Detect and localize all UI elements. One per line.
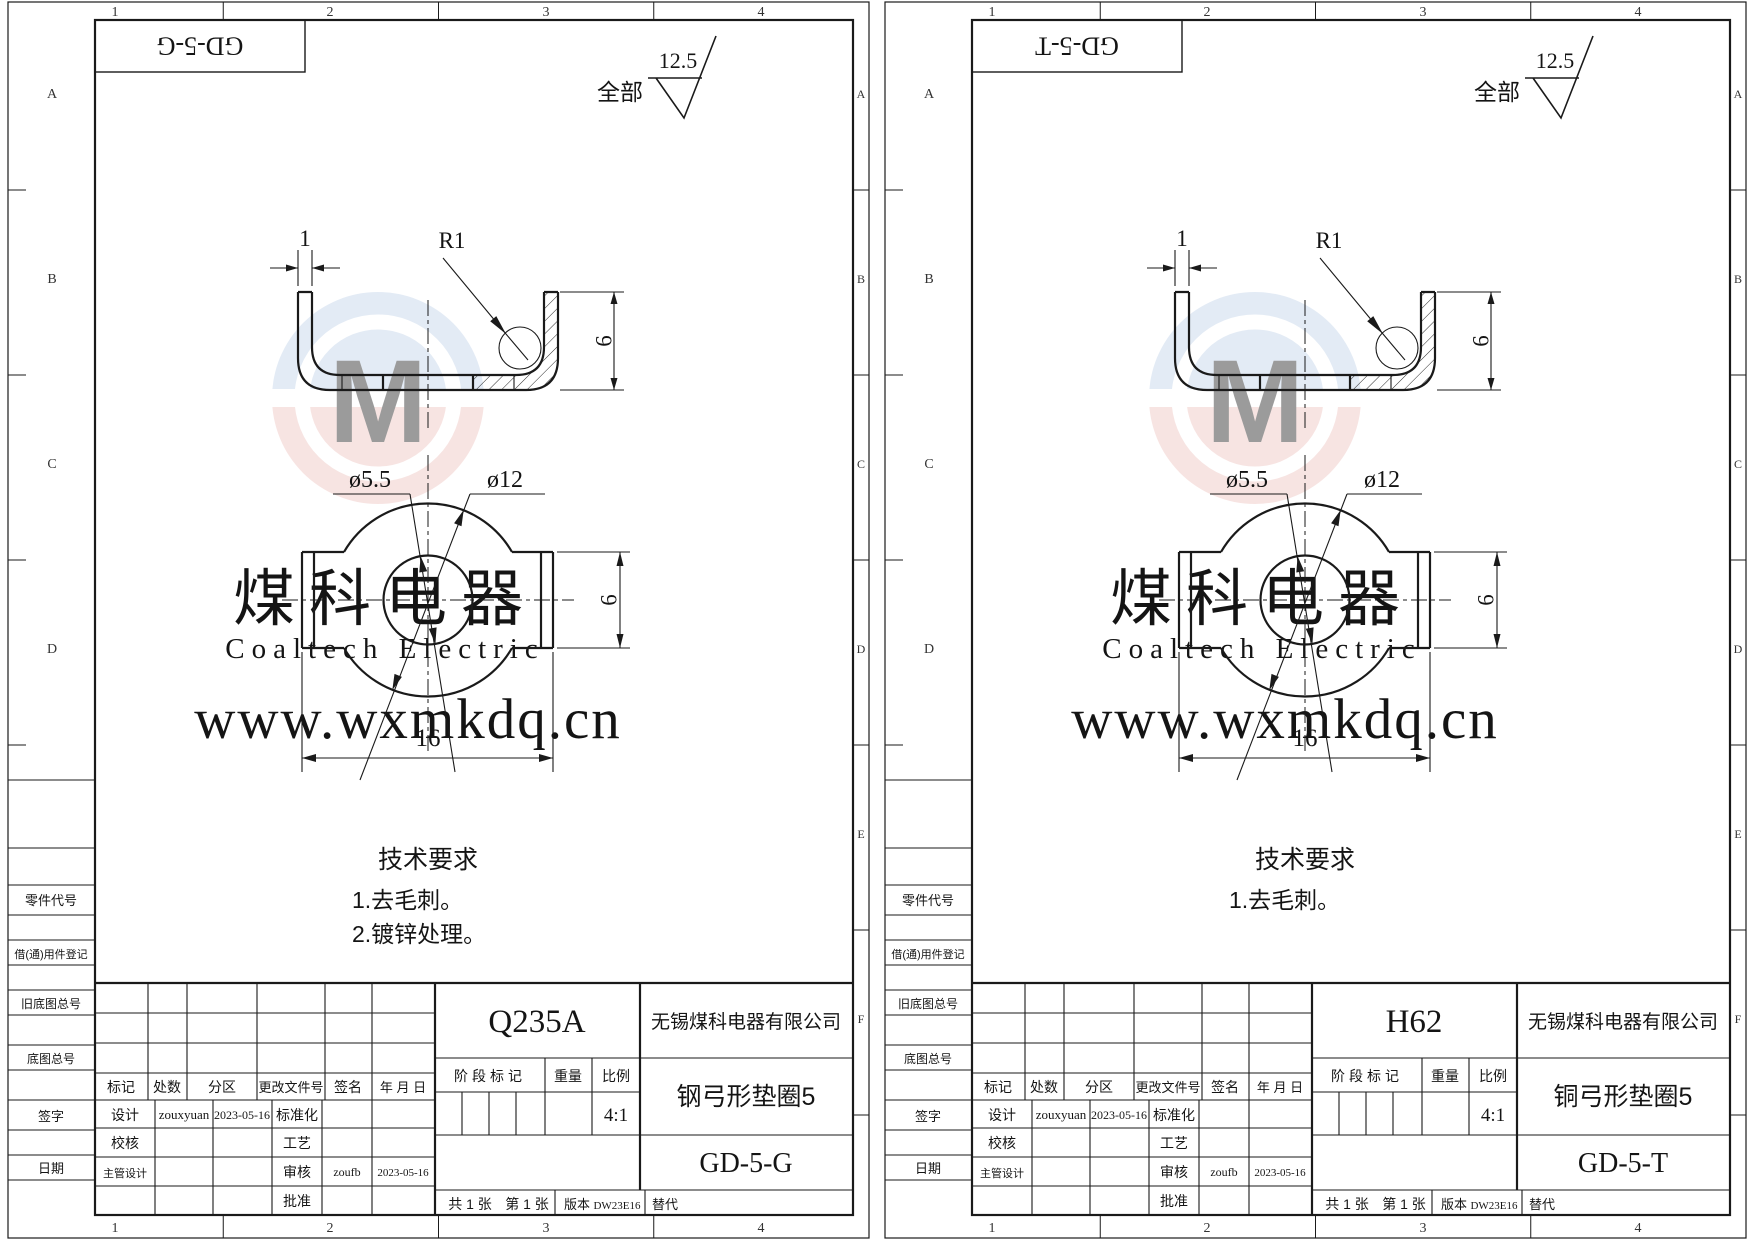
version-value: DW23E16 (1470, 1200, 1518, 1212)
logo-m-letter: M (329, 336, 427, 468)
company-name: 无锡煤科电器有限公司 (1528, 1011, 1718, 1033)
company-name: 无锡煤科电器有限公司 (651, 1011, 841, 1033)
margin-date-label: 日期 (38, 1161, 64, 1176)
rev-col-sign: 签名 (334, 1079, 362, 1095)
dim-section-height: 6 (1469, 335, 1494, 347)
zone-col-top-3: 3 (1420, 5, 1427, 20)
margin-label-column: 零件代号 借(通)用件登记 旧底图总号 底图总号 签字 日期 (885, 780, 972, 1180)
dim-overall-width: 16 (416, 725, 441, 752)
watermark-brand-en: Coaltech Electric (225, 633, 544, 665)
margin-old-base-no-label: 旧底图总号 (898, 996, 958, 1011)
scale-value: 4:1 (604, 1105, 628, 1126)
zone-row-right-f: F (1735, 1012, 1742, 1026)
rev-col-docno: 更改文件号 (258, 1080, 323, 1095)
zone-row-left-a: A (924, 87, 935, 102)
zone-row-left-c: C (47, 457, 56, 472)
tech-req-item-1: 1.去毛刺。 (352, 887, 463, 913)
role-standard-label: 标准化 (1153, 1107, 1195, 1123)
version-label: 版本 (1441, 1197, 1467, 1212)
zone-col-top-2: 2 (327, 5, 334, 20)
surface-roughness-value: 12.5 (659, 48, 698, 73)
dim-tab-height: 6 (597, 594, 622, 606)
zone-col-bottom-3: 3 (543, 1221, 550, 1236)
rev-col-mark: 标记 (107, 1079, 135, 1095)
surface-scope-label: 全部 (1474, 79, 1520, 105)
zone-row-right-c: C (857, 457, 865, 471)
rev-col-date: 年 月 日 (380, 1080, 426, 1095)
zone-row-left-b: B (924, 272, 933, 287)
designer-name: zouxyuan (1036, 1107, 1087, 1122)
role-chief-label: 主管设计 (980, 1166, 1024, 1180)
dim-outer-dia: ø12 (487, 467, 523, 493)
zone-col-top-4: 4 (1635, 5, 1642, 20)
zone-row-right-c: C (1734, 457, 1742, 471)
sheet-number: 第 1 张 (1382, 1196, 1426, 1212)
designer-name: zouxyuan (159, 1107, 210, 1122)
role-process-label: 工艺 (1160, 1135, 1188, 1151)
part-name: 铜弓形垫圈5 (1554, 1083, 1693, 1111)
dim-bend-radius: R1 (439, 228, 466, 253)
role-check-label: 校核 (111, 1135, 139, 1151)
zone-row-right-a: A (1734, 87, 1743, 101)
surface-finish: 12.5 全部 (1474, 36, 1593, 118)
drawing-sheet-right: M 煤科电器 Coaltech Electric www.wxmkdq.cn 1… (877, 0, 1754, 1240)
zone-col-top-1: 1 (112, 5, 119, 20)
role-process-label: 工艺 (283, 1135, 311, 1151)
corner-code-box: GD-5-G (95, 20, 305, 72)
audit-date: 2023-05-16 (1254, 1167, 1306, 1179)
corner-code-box: GD-5-T (972, 20, 1182, 72)
role-audit-label: 审核 (283, 1164, 311, 1180)
audit-date: 2023-05-16 (377, 1167, 429, 1179)
zone-row-left-d: D (47, 642, 57, 657)
drawing-number: GD-5-G (699, 1148, 792, 1179)
rev-col-docno: 更改文件号 (1135, 1080, 1200, 1095)
scale-label: 比例 (602, 1068, 630, 1084)
material-value: H62 (1386, 1004, 1443, 1040)
scale-label: 比例 (1479, 1068, 1507, 1084)
margin-label-column: 零件代号 借(通)用件登记 旧底图总号 底图总号 签字 日期 (8, 780, 95, 1180)
role-approve-label: 批准 (283, 1193, 311, 1209)
auditor-name: zoufb (1210, 1165, 1237, 1179)
margin-base-no-label: 底图总号 (904, 1051, 952, 1066)
tech-requirements: 技术要求 1.去毛刺。 (1229, 846, 1355, 913)
replace-label: 替代 (1529, 1197, 1555, 1212)
zone-col-bottom-2: 2 (327, 1221, 334, 1236)
stage-mark-label: 阶段标记 (1331, 1068, 1403, 1084)
drawing-sheet-left: M 煤科电器 Coaltech Electric www.wxmkdq.cn 1… (0, 0, 877, 1240)
version-label: 版本 (564, 1197, 590, 1212)
tech-req-item-1: 1.去毛刺。 (1229, 887, 1340, 913)
tech-requirements: 技术要求 1.去毛刺。 2.镀锌处理。 (352, 846, 486, 947)
zone-col-bottom-3: 3 (1420, 1221, 1427, 1236)
sheet-number: 第 1 张 (505, 1196, 549, 1212)
dim-hole-dia: ø5.5 (349, 467, 391, 493)
zone-row-right-a: A (857, 87, 866, 101)
tech-req-title: 技术要求 (1255, 846, 1355, 874)
watermark-url: www.wxmkdq.cn (194, 688, 622, 751)
zone-row-right-b: B (1734, 272, 1742, 286)
zone-col-top-1: 1 (989, 5, 996, 20)
surface-finish: 12.5 全部 (597, 36, 716, 118)
dim-section-height: 6 (592, 335, 617, 347)
weight-label: 重量 (1431, 1068, 1459, 1084)
margin-signature-label: 签字 (38, 1109, 64, 1124)
role-chief-label: 主管设计 (103, 1166, 147, 1180)
part-name: 钢弓形垫圈5 (677, 1083, 816, 1111)
corner-code: GD-5-T (1035, 32, 1119, 61)
margin-borrow-reg-label: 借(通)用件登记 (891, 947, 964, 961)
title-block: 标记 处数 分区 更改文件号 签名 年 月 日 设计 zouxyuan 2023… (972, 983, 1730, 1215)
rev-col-mark: 标记 (984, 1079, 1012, 1095)
role-standard-label: 标准化 (276, 1107, 318, 1123)
zone-col-top-3: 3 (543, 5, 550, 20)
rev-col-zone: 分区 (1085, 1079, 1113, 1095)
weight-label: 重量 (554, 1068, 582, 1084)
zone-col-bottom-4: 4 (1635, 1221, 1642, 1236)
zone-col-bottom-1: 1 (112, 1221, 119, 1236)
design-date: 2023-05-16 (214, 1108, 270, 1122)
zone-row-right-e: E (1734, 827, 1741, 841)
surface-roughness-value: 12.5 (1536, 48, 1575, 73)
replace-label: 替代 (652, 1197, 678, 1212)
title-block: 标记 处数 分区 更改文件号 签名 年 月 日 设计 zouxyuan 2023… (95, 983, 853, 1215)
zone-row-left-c: C (924, 457, 933, 472)
dim-thickness: 1 (299, 226, 311, 251)
watermark-url: www.wxmkdq.cn (1071, 688, 1499, 751)
drawing-number: GD-5-T (1578, 1148, 1668, 1179)
zone-col-bottom-1: 1 (989, 1221, 996, 1236)
stage-mark-label: 阶段标记 (454, 1068, 526, 1084)
role-design-label: 设计 (988, 1107, 1016, 1123)
tech-req-item-2: 2.镀锌处理。 (352, 921, 486, 947)
dim-thickness: 1 (1176, 226, 1188, 251)
watermark-brand-en: Coaltech Electric (1102, 633, 1421, 665)
zone-col-top-2: 2 (1204, 5, 1211, 20)
rev-col-count: 处数 (153, 1079, 181, 1095)
material-value: Q235A (488, 1004, 585, 1040)
logo-m-letter: M (1206, 336, 1304, 468)
zone-col-top-4: 4 (758, 5, 765, 20)
dim-outer-dia: ø12 (1364, 467, 1400, 493)
zone-row-right-d: D (857, 642, 866, 656)
margin-signature-label: 签字 (915, 1109, 941, 1124)
surface-scope-label: 全部 (597, 79, 643, 105)
zone-row-right-d: D (1734, 642, 1743, 656)
zone-row-left-b: B (47, 272, 56, 287)
zone-col-bottom-2: 2 (1204, 1221, 1211, 1236)
version-value: DW23E16 (593, 1200, 641, 1212)
margin-part-code-label: 零件代号 (25, 893, 77, 908)
rev-col-zone: 分区 (208, 1079, 236, 1095)
zone-row-right-f: F (858, 1012, 865, 1026)
sheet-count: 共 1 张 (1325, 1196, 1369, 1212)
rev-col-count: 处数 (1030, 1079, 1058, 1095)
zone-row-right-b: B (857, 272, 865, 286)
corner-code: GD-5-G (157, 32, 244, 61)
rev-col-sign: 签名 (1211, 1079, 1239, 1095)
sheet-count: 共 1 张 (448, 1196, 492, 1212)
margin-part-code-label: 零件代号 (902, 893, 954, 908)
dim-tab-height: 6 (1474, 594, 1499, 606)
zone-row-right-e: E (857, 827, 864, 841)
tech-req-title: 技术要求 (378, 846, 478, 874)
role-approve-label: 批准 (1160, 1193, 1188, 1209)
dim-overall-width: 16 (1293, 725, 1318, 752)
zone-col-bottom-4: 4 (758, 1221, 765, 1236)
dim-bend-radius: R1 (1316, 228, 1343, 253)
sheets-row: M 煤科电器 Coaltech Electric www.wxmkdq.cn 1… (0, 0, 1754, 1240)
margin-borrow-reg-label: 借(通)用件登记 (14, 947, 87, 961)
auditor-name: zoufb (333, 1165, 360, 1179)
zone-row-left-d: D (924, 642, 934, 657)
dim-hole-dia: ø5.5 (1226, 467, 1268, 493)
margin-old-base-no-label: 旧底图总号 (21, 996, 81, 1011)
zone-row-left-a: A (47, 87, 58, 102)
scale-value: 4:1 (1481, 1105, 1505, 1126)
role-audit-label: 审核 (1160, 1164, 1188, 1180)
role-check-label: 校核 (988, 1135, 1016, 1151)
rev-col-date: 年 月 日 (1257, 1080, 1303, 1095)
role-design-label: 设计 (111, 1107, 139, 1123)
margin-date-label: 日期 (915, 1161, 941, 1176)
margin-base-no-label: 底图总号 (27, 1051, 75, 1066)
design-date: 2023-05-16 (1091, 1108, 1147, 1122)
